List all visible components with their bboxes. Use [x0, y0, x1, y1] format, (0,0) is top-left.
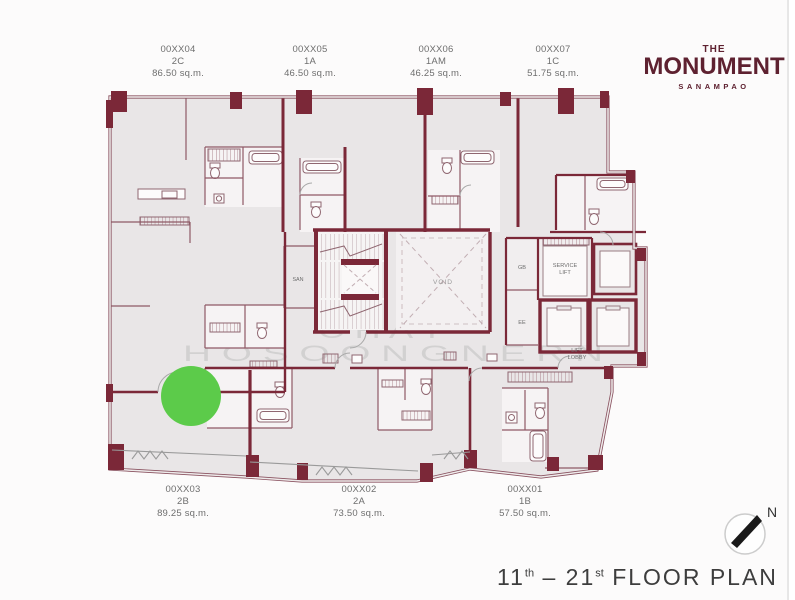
- compass-north-label: N: [767, 504, 777, 520]
- brand-name: MONUMENT: [638, 53, 790, 81]
- unit-area: 51.75 sq.m.: [493, 68, 613, 80]
- title-end: 21: [566, 564, 596, 590]
- unit-type: 1C: [493, 56, 613, 68]
- brand-logo: THE MONUMENT SANAMPAO: [638, 44, 790, 91]
- unit-id: 00XX03: [123, 484, 243, 496]
- brand-subtitle: SANAMPAO: [638, 82, 790, 91]
- label-ee: EE: [518, 320, 526, 326]
- unit-label-00xx03: 00XX03 2B 89.25 sq.m.: [123, 484, 243, 520]
- label-service-lift-1: SERVICE: [553, 263, 578, 269]
- title-start-sup: th: [525, 567, 534, 579]
- unit-type: 2B: [123, 496, 243, 508]
- unit-label-00xx07: 00XX07 1C 51.75 sq.m.: [493, 44, 613, 80]
- unit-id: 00XX01: [465, 484, 585, 496]
- core-areas: [316, 232, 488, 330]
- unit-id: 00XX06: [376, 44, 496, 56]
- selection-marker: [161, 366, 221, 426]
- label-san: SAN: [292, 277, 303, 283]
- unit-id: 00XX05: [250, 44, 370, 56]
- plan-title: 11th – 21st FLOOR PLAN: [497, 564, 778, 591]
- title-separator: –: [534, 564, 566, 590]
- label-lift-lobby-1: LIFT: [571, 348, 583, 354]
- label-service-lift-2: LIFT: [559, 270, 571, 276]
- label-lift-lobby-2: LOBBY: [568, 355, 587, 361]
- unit-id: 00XX07: [493, 44, 613, 56]
- label-void: VOID: [433, 279, 453, 286]
- unit-type: 2C: [118, 56, 238, 68]
- label-gb: GB: [518, 265, 526, 271]
- floor-plan-page: C H A T H O S O O N G N E R N: [0, 0, 795, 600]
- unit-label-00xx04: 00XX04 2C 86.50 sq.m.: [118, 44, 238, 80]
- unit-area: 73.50 sq.m.: [299, 508, 419, 520]
- unit-area: 46.25 sq.m.: [376, 68, 496, 80]
- unit-label-00xx06: 00XX06 1AM 46.25 sq.m.: [376, 44, 496, 80]
- unit-area: 89.25 sq.m.: [123, 508, 243, 520]
- unit-type: 2A: [299, 496, 419, 508]
- unit-area: 57.50 sq.m.: [465, 508, 585, 520]
- unit-area: 86.50 sq.m.: [118, 68, 238, 80]
- title-end-sup: st: [595, 567, 604, 579]
- unit-type: 1AM: [376, 56, 496, 68]
- unit-id: 00XX02: [299, 484, 419, 496]
- unit-type: 1B: [465, 496, 585, 508]
- title-suffix: FLOOR PLAN: [604, 564, 778, 590]
- unit-area: 46.50 sq.m.: [250, 68, 370, 80]
- unit-id: 00XX04: [118, 44, 238, 56]
- unit-label-00xx05: 00XX05 1A 46.50 sq.m.: [250, 44, 370, 80]
- unit-type: 1A: [250, 56, 370, 68]
- title-start: 11: [497, 564, 525, 590]
- unit-label-00xx01: 00XX01 1B 57.50 sq.m.: [465, 484, 585, 520]
- unit-label-00xx02: 00XX02 2A 73.50 sq.m.: [299, 484, 419, 520]
